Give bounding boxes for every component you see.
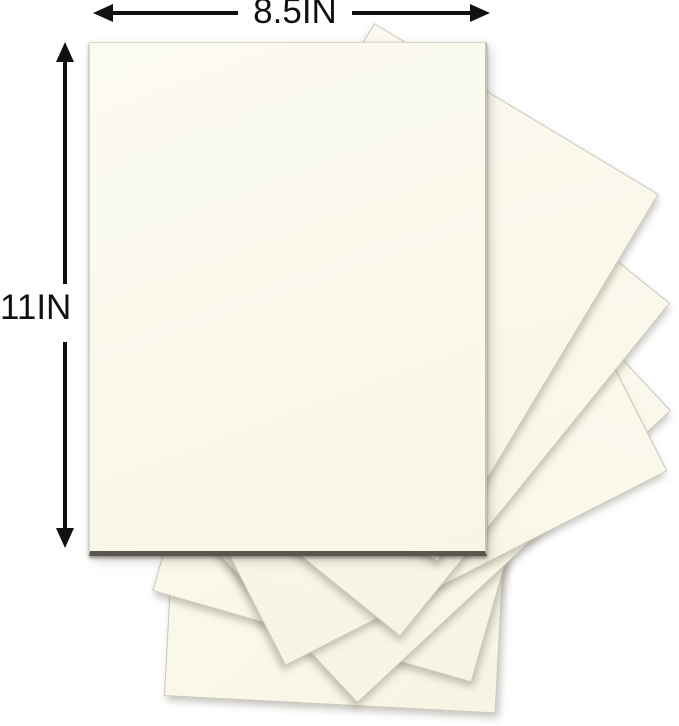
height-label: 11IN: [0, 290, 64, 325]
width-dimension: 8.5IN: [0, 0, 679, 40]
height-arrow-bottom-shaft: [63, 342, 67, 530]
width-arrow-left-shaft: [109, 11, 238, 15]
width-arrow-right-shaft: [352, 11, 472, 15]
width-arrow-right-head-icon: [470, 4, 490, 22]
height-dimension: 11IN: [0, 0, 90, 560]
height-arrow-bottom-head-icon: [56, 528, 74, 548]
height-arrow-top-shaft: [63, 59, 67, 284]
product-image: 8.5IN 11IN: [0, 0, 679, 726]
main-sheet: [89, 42, 487, 556]
width-label: 8.5IN: [235, 0, 355, 29]
